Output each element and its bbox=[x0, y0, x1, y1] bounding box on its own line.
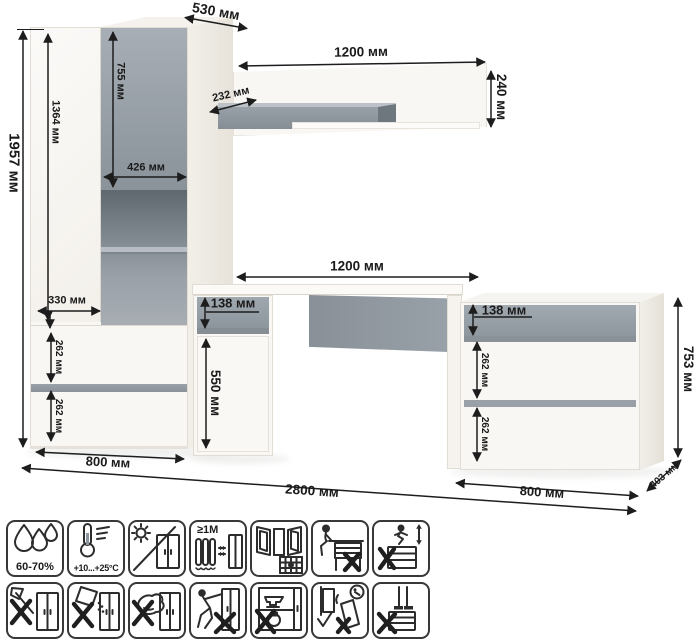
care-icons-grid: 60-70% +10...+25°C bbox=[6, 520, 430, 639]
icon-no-heavy-items-inside bbox=[250, 582, 308, 639]
icon-no-wet-scrubbing bbox=[128, 582, 186, 639]
icon-temperature-range: +10...+25°C bbox=[67, 520, 125, 577]
dim-label-total-height: 1957 мм bbox=[7, 133, 22, 193]
dim-label-dresser-top-drawer: 138 мм bbox=[482, 304, 527, 317]
dim-label-wardrobe-drawer-2: 262 мм bbox=[53, 399, 63, 433]
humidity-value: 60-70% bbox=[8, 561, 62, 573]
open-window-icon bbox=[252, 522, 306, 575]
no-heavy-objects-in-cabinet-icon bbox=[252, 584, 306, 637]
anchor-to-wall-icon bbox=[313, 584, 367, 637]
icon-min-1m-from-heat: ≥1М bbox=[189, 520, 247, 577]
dim-label-desk-door: 550 мм bbox=[208, 370, 222, 416]
dim-label-wardrobe-width: 800 мм bbox=[85, 454, 130, 469]
dim-label-upper-door-width: 426 мм bbox=[127, 163, 165, 174]
dim-label-shelf-length: 1200 мм bbox=[334, 45, 388, 59]
dim-label-desk-drawer: 138 мм bbox=[211, 297, 256, 310]
dim-line-shelf-length bbox=[239, 62, 485, 66]
furniture-dimension-diagram: 530 мм 1957 мм 1364 мм 755 мм 426 мм 232… bbox=[0, 0, 700, 644]
temperature-value: +10...+25°C bbox=[69, 563, 123, 573]
no-standing-on-dresser-icon bbox=[374, 584, 428, 637]
dim-label-left-door-height: 1364 мм bbox=[50, 100, 61, 144]
icon-anchor-to-wall bbox=[311, 582, 369, 639]
dim-label-upper-door-height: 755 мм bbox=[115, 62, 126, 100]
no-dragging-cabinet-icon bbox=[191, 584, 245, 637]
dim-label-shelf-height: 240 мм bbox=[494, 74, 508, 120]
sun-cabinet-slash-icon bbox=[130, 522, 184, 575]
icon-no-jumping bbox=[372, 520, 430, 577]
icon-ventilated-room bbox=[250, 520, 308, 577]
dim-label-dresser-drawer-1: 262 мм bbox=[479, 353, 489, 387]
icon-humidity: 60-70% bbox=[6, 520, 64, 577]
dim-label-niche-width: 330 мм bbox=[48, 296, 86, 307]
no-sitting-on-desk-icon bbox=[313, 522, 367, 575]
dim-label-wardrobe-drawer-1: 262 мм bbox=[53, 340, 63, 374]
icon-no-dragging bbox=[189, 582, 247, 639]
dim-label-dresser-height: 753 мм bbox=[681, 346, 695, 392]
no-jumping-on-dresser-icon bbox=[374, 522, 428, 575]
no-sponge-icon bbox=[130, 584, 184, 637]
distance-value: ≥1М bbox=[197, 524, 218, 536]
icon-no-direct-sunlight bbox=[128, 520, 186, 577]
no-axe-icon bbox=[8, 584, 62, 637]
dim-label-desk-length: 1200 мм bbox=[330, 259, 384, 273]
icon-no-sharp-tools bbox=[6, 582, 64, 639]
water-drops-icon bbox=[8, 522, 62, 558]
icon-no-sitting bbox=[311, 520, 369, 577]
icon-no-standing bbox=[372, 582, 430, 639]
icon-no-abrasive-powders bbox=[67, 582, 125, 639]
thermometer-icon bbox=[69, 522, 123, 558]
dim-label-dresser-width: 800 мм bbox=[519, 484, 564, 500]
dim-label-dresser-drawer-2: 262 мм bbox=[479, 417, 489, 451]
no-powder-box-icon bbox=[69, 584, 123, 637]
